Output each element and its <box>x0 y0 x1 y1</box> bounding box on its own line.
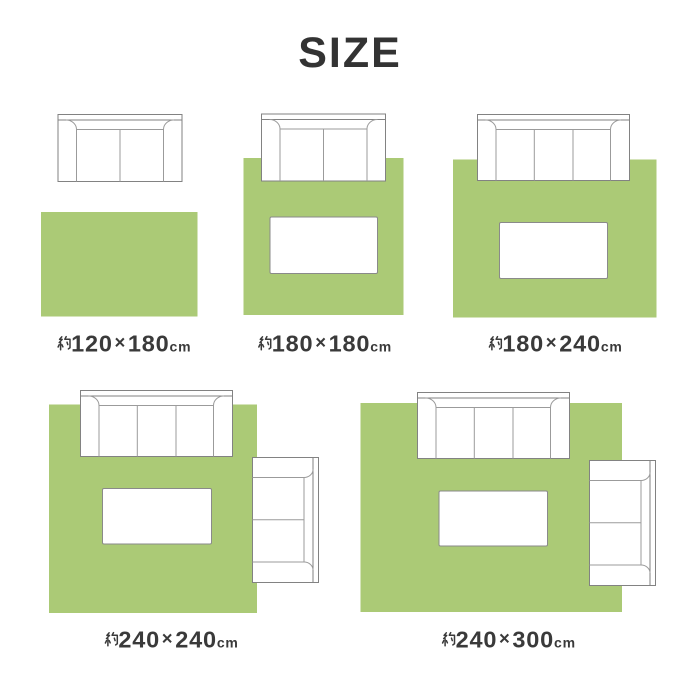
svg-text:180×240cm: 180×240cm <box>502 331 622 357</box>
svg-text:SIZE: SIZE <box>298 29 402 77</box>
svg-text:120×180cm: 120×180cm <box>71 331 191 357</box>
svg-text:240×240cm: 240×240cm <box>118 627 238 653</box>
svg-text:240×300cm: 240×300cm <box>456 627 576 653</box>
svg-text:180×180cm: 180×180cm <box>272 331 392 357</box>
